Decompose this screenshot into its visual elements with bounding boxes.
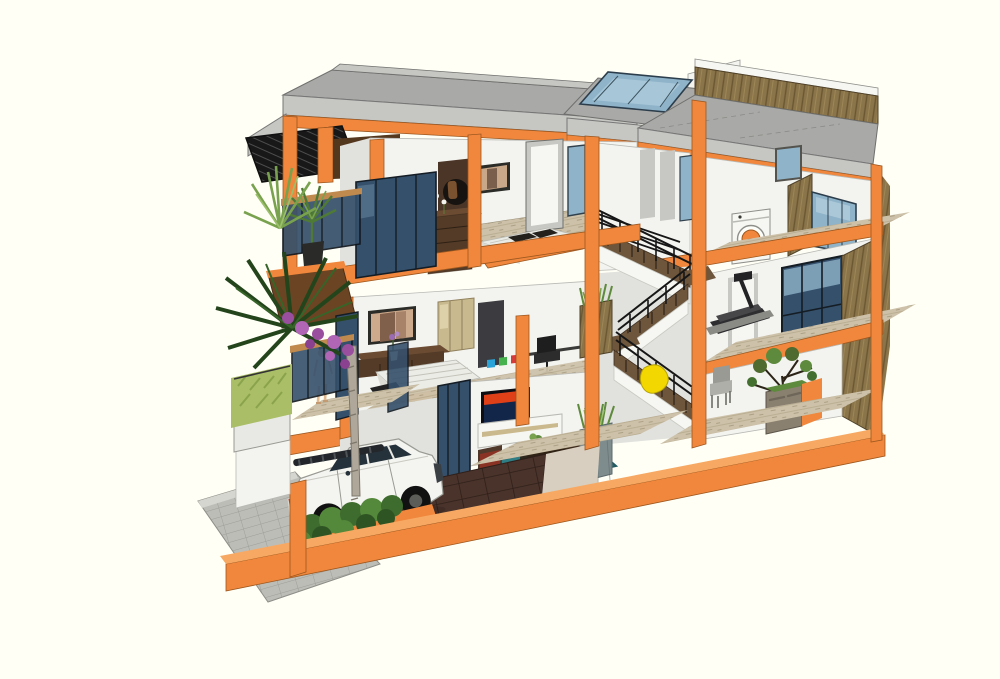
column-2f-mid [516,315,529,426]
house-section-svg [40,16,1000,663]
column-3f-mid [468,134,481,268]
hedge-planter [231,364,292,452]
small-square-window [776,146,801,181]
column-garage-gate [290,480,306,577]
wall-photo-third-floor [477,162,510,194]
overhang-support-column [318,127,333,183]
tower-door-1 [640,148,655,219]
architectural-section-render: SketchUp-style architectural section ren… [40,16,1000,663]
tower-door-2 [660,150,675,221]
bedroom3-stair-window [568,145,585,216]
column-tower-left [585,136,599,450]
bedroom3-door [526,139,563,232]
column-right-block-left [692,100,706,448]
column-right-end [871,164,882,442]
